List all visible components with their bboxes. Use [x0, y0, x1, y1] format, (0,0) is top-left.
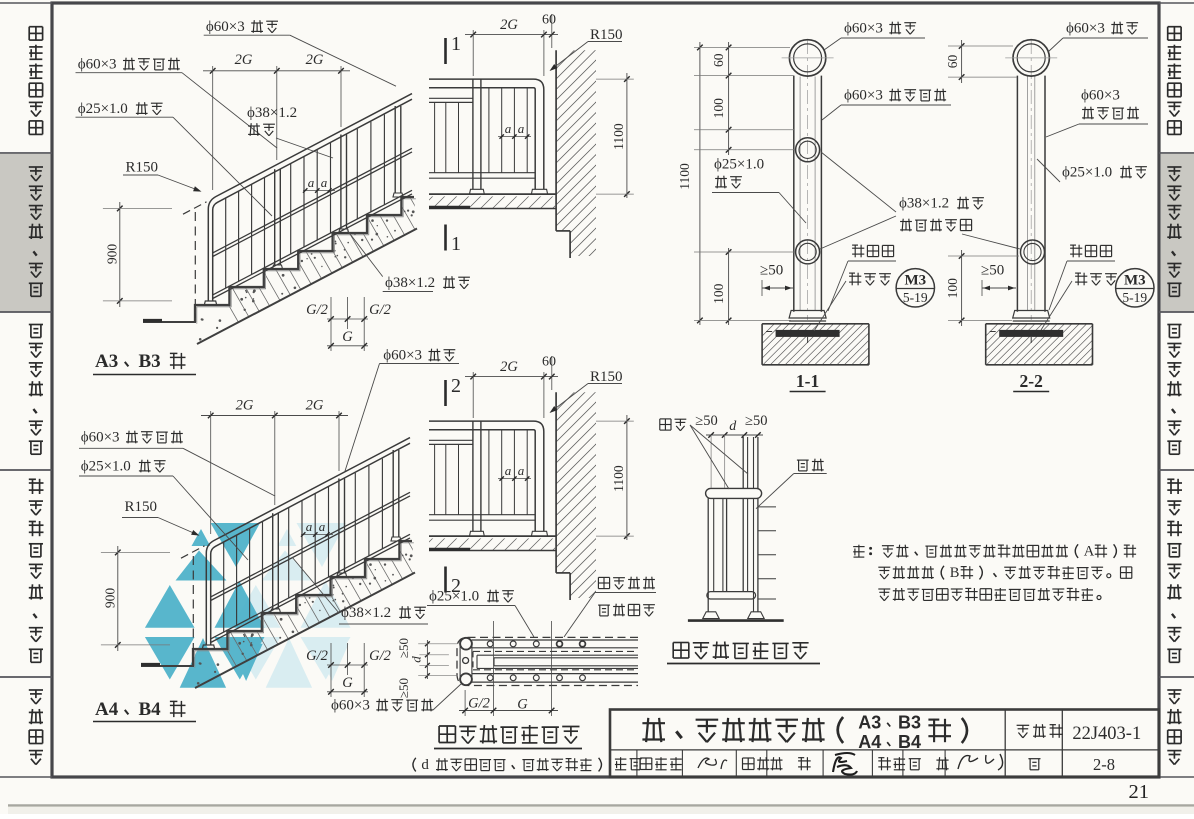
- svg-text:ϕ38×1.2: ϕ38×1.2: [247, 105, 297, 121]
- svg-text:≥50: ≥50: [695, 413, 717, 429]
- svg-text:100: 100: [945, 278, 960, 299]
- svg-text:5-19: 5-19: [1122, 290, 1147, 305]
- svg-text:a: a: [308, 175, 315, 190]
- svg-text:1100: 1100: [611, 123, 626, 150]
- svg-text:ϕ38×1.2: ϕ38×1.2: [899, 196, 949, 212]
- svg-text:≥50: ≥50: [760, 263, 783, 279]
- svg-text:A4: A4: [858, 732, 881, 752]
- svg-text:ϕ25×1.0: ϕ25×1.0: [1062, 165, 1112, 181]
- svg-text:B: B: [950, 565, 960, 581]
- svg-text:1100: 1100: [611, 465, 626, 492]
- svg-text:ϕ60×3: ϕ60×3: [81, 430, 120, 446]
- svg-text:ϕ38×1.2: ϕ38×1.2: [385, 275, 435, 291]
- svg-text:2G: 2G: [235, 52, 253, 68]
- svg-text:2G: 2G: [500, 359, 518, 375]
- svg-text:2G: 2G: [500, 17, 518, 33]
- svg-text:≥50: ≥50: [396, 678, 411, 698]
- svg-text:A4: A4: [95, 699, 119, 720]
- svg-text:ϕ60×3: ϕ60×3: [78, 57, 117, 73]
- svg-text:1: 1: [451, 233, 461, 255]
- svg-text:R150: R150: [590, 27, 623, 43]
- svg-text:22J403-1: 22J403-1: [1072, 724, 1141, 744]
- svg-text:A: A: [1084, 544, 1095, 560]
- svg-text:≥50: ≥50: [396, 638, 411, 658]
- svg-text:G/2: G/2: [369, 648, 391, 664]
- svg-text:A3: A3: [95, 351, 118, 372]
- svg-text:G/2: G/2: [306, 302, 328, 318]
- svg-text:60: 60: [542, 13, 556, 28]
- svg-text:100: 100: [711, 98, 726, 119]
- svg-text:R150: R150: [590, 369, 623, 385]
- svg-text:≥50: ≥50: [745, 413, 767, 429]
- svg-text:ϕ60×3: ϕ60×3: [331, 698, 370, 714]
- svg-text:2-8: 2-8: [1093, 755, 1115, 774]
- svg-text:ϕ25×1.0: ϕ25×1.0: [429, 589, 479, 605]
- svg-text:M3: M3: [1124, 273, 1146, 289]
- svg-text:ϕ25×1.0: ϕ25×1.0: [78, 101, 128, 117]
- svg-text:2G: 2G: [306, 52, 324, 68]
- svg-text:G: G: [342, 675, 353, 691]
- svg-text:ϕ60×3: ϕ60×3: [206, 19, 245, 35]
- svg-text:2G: 2G: [236, 398, 254, 414]
- svg-text:ϕ60×3: ϕ60×3: [844, 21, 883, 37]
- svg-text:a: a: [518, 121, 525, 136]
- svg-text:900: 900: [105, 244, 120, 265]
- svg-text:a: a: [319, 519, 326, 534]
- svg-text:B3: B3: [898, 713, 921, 733]
- svg-text:R150: R150: [126, 160, 159, 176]
- svg-text:2-2: 2-2: [1020, 371, 1043, 391]
- svg-text:G/2: G/2: [306, 648, 328, 664]
- svg-text:ϕ60×3: ϕ60×3: [1066, 21, 1105, 37]
- svg-text:60: 60: [542, 355, 556, 370]
- svg-text:B4: B4: [139, 699, 162, 720]
- svg-text:≥50: ≥50: [981, 263, 1004, 279]
- svg-text:G: G: [517, 697, 528, 713]
- svg-text:ϕ60×3: ϕ60×3: [383, 348, 422, 364]
- svg-text:R150: R150: [125, 499, 158, 515]
- svg-text:1-1: 1-1: [796, 371, 819, 391]
- svg-text:B3: B3: [139, 351, 161, 372]
- svg-text:d: d: [421, 757, 429, 773]
- svg-text:2: 2: [451, 375, 461, 397]
- svg-text:A3: A3: [858, 713, 881, 733]
- svg-text:a: a: [505, 121, 512, 136]
- svg-text:60: 60: [711, 53, 726, 67]
- svg-text:a: a: [518, 463, 525, 478]
- svg-text:M3: M3: [904, 273, 926, 289]
- svg-text:ϕ25×1.0: ϕ25×1.0: [81, 459, 131, 475]
- svg-text:a: a: [306, 519, 313, 534]
- svg-text:100: 100: [711, 283, 726, 304]
- svg-text:a: a: [505, 463, 512, 478]
- svg-text:1: 1: [451, 33, 461, 55]
- svg-text:a: a: [321, 175, 328, 190]
- svg-text:ϕ60×3: ϕ60×3: [1081, 88, 1120, 104]
- svg-text:1100: 1100: [677, 163, 692, 190]
- svg-text:900: 900: [103, 588, 118, 609]
- svg-text:60: 60: [945, 55, 960, 69]
- svg-text:B4: B4: [898, 732, 921, 752]
- svg-text:d: d: [729, 419, 737, 434]
- svg-text:ϕ60×3: ϕ60×3: [844, 88, 883, 104]
- svg-text:2G: 2G: [306, 398, 324, 414]
- svg-text:d: d: [409, 656, 424, 663]
- svg-text:21: 21: [1129, 781, 1150, 803]
- svg-text:G/2: G/2: [369, 302, 391, 318]
- svg-text:5-19: 5-19: [903, 290, 928, 305]
- svg-text:ϕ38×1.2: ϕ38×1.2: [341, 605, 391, 621]
- svg-text:ϕ25×1.0: ϕ25×1.0: [714, 157, 764, 173]
- svg-text:G/2: G/2: [468, 696, 490, 712]
- svg-text:G: G: [342, 329, 353, 345]
